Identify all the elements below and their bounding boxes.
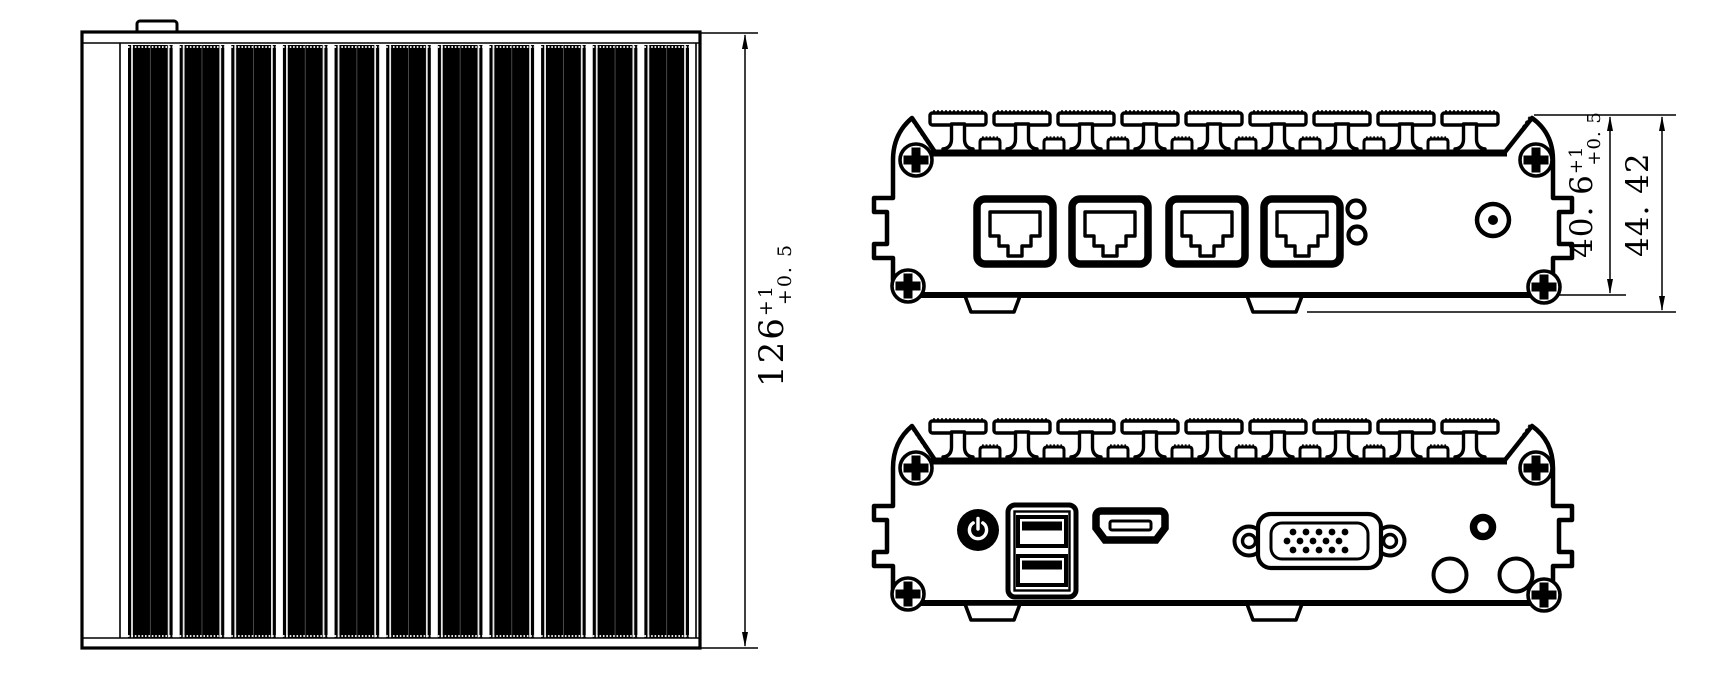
rj45-port-icon: [977, 199, 1053, 264]
dimension-126: 126+1+0. 5: [700, 33, 796, 648]
technical-drawing-page: 126+1+0. 5 40. 6+1+0. 5: [0, 0, 1729, 692]
arrowhead-icon: [742, 34, 748, 49]
arrowhead-icon: [1607, 279, 1613, 294]
screw-icon: [900, 452, 932, 484]
vga-pin: [1329, 529, 1336, 536]
rubber-foot: [965, 296, 1020, 312]
screw-icon: [892, 578, 924, 610]
top-view-heatsink: 126+1+0. 5: [82, 21, 796, 648]
hdmi-port-icon: [1096, 511, 1165, 540]
technical-drawing: 126+1+0. 5 40. 6+1+0. 5: [0, 0, 1729, 692]
vga-pin: [1316, 547, 1323, 554]
vga-pin: [1336, 538, 1343, 545]
vga-pin: [1290, 547, 1297, 554]
vga-pin: [1342, 547, 1349, 554]
vga-pin: [1303, 529, 1310, 536]
vga-pin: [1303, 547, 1310, 554]
screw-icon: [1520, 144, 1552, 176]
dimension-text: 40. 6+1+0. 5: [1564, 111, 1605, 258]
vga-pin: [1310, 538, 1317, 545]
vga-pin: [1297, 538, 1304, 545]
dimension-text: 126+1+0. 5: [752, 243, 796, 387]
rubber-foot: [1247, 604, 1302, 620]
rj45-port-icon: [1264, 199, 1340, 264]
arrowhead-icon: [1607, 116, 1613, 131]
vga-pin: [1316, 529, 1323, 536]
usb-ports-icon: [1008, 505, 1076, 597]
rear-panel-view: [874, 420, 1572, 621]
screw-icon: [900, 144, 932, 176]
screw-icon: [1528, 579, 1560, 611]
screw-icon: [892, 270, 924, 302]
heatsink-fin-array: [128, 45, 689, 638]
dimension-text: 44. 42: [1620, 152, 1656, 257]
rj45-port-icon: [1169, 199, 1245, 264]
rj45-port-icon: [1072, 199, 1148, 264]
vga-pin: [1290, 529, 1297, 536]
arrowhead-icon: [742, 632, 748, 647]
vga-pin: [1284, 538, 1291, 545]
heatsink-fin-profile: [930, 420, 1498, 461]
power-button-icon: [957, 509, 999, 551]
arrowhead-icon: [1659, 296, 1665, 311]
arrowhead-icon: [1659, 116, 1665, 131]
heatsink-fin-profile: [930, 112, 1498, 153]
dc-jack-icon: [1477, 204, 1509, 236]
vga-pin: [1323, 538, 1330, 545]
front-panel-view: 40. 6+1+0. 5 44. 42: [874, 111, 1676, 312]
rubber-foot: [1247, 296, 1302, 312]
screw-icon: [1528, 271, 1560, 303]
vga-pin: [1329, 547, 1336, 554]
vga-port-icon: [1235, 514, 1405, 568]
screw-icon: [1520, 452, 1552, 484]
vga-pin: [1342, 529, 1349, 536]
audio-jack-icon: [1474, 518, 1493, 537]
rubber-foot: [965, 604, 1020, 620]
